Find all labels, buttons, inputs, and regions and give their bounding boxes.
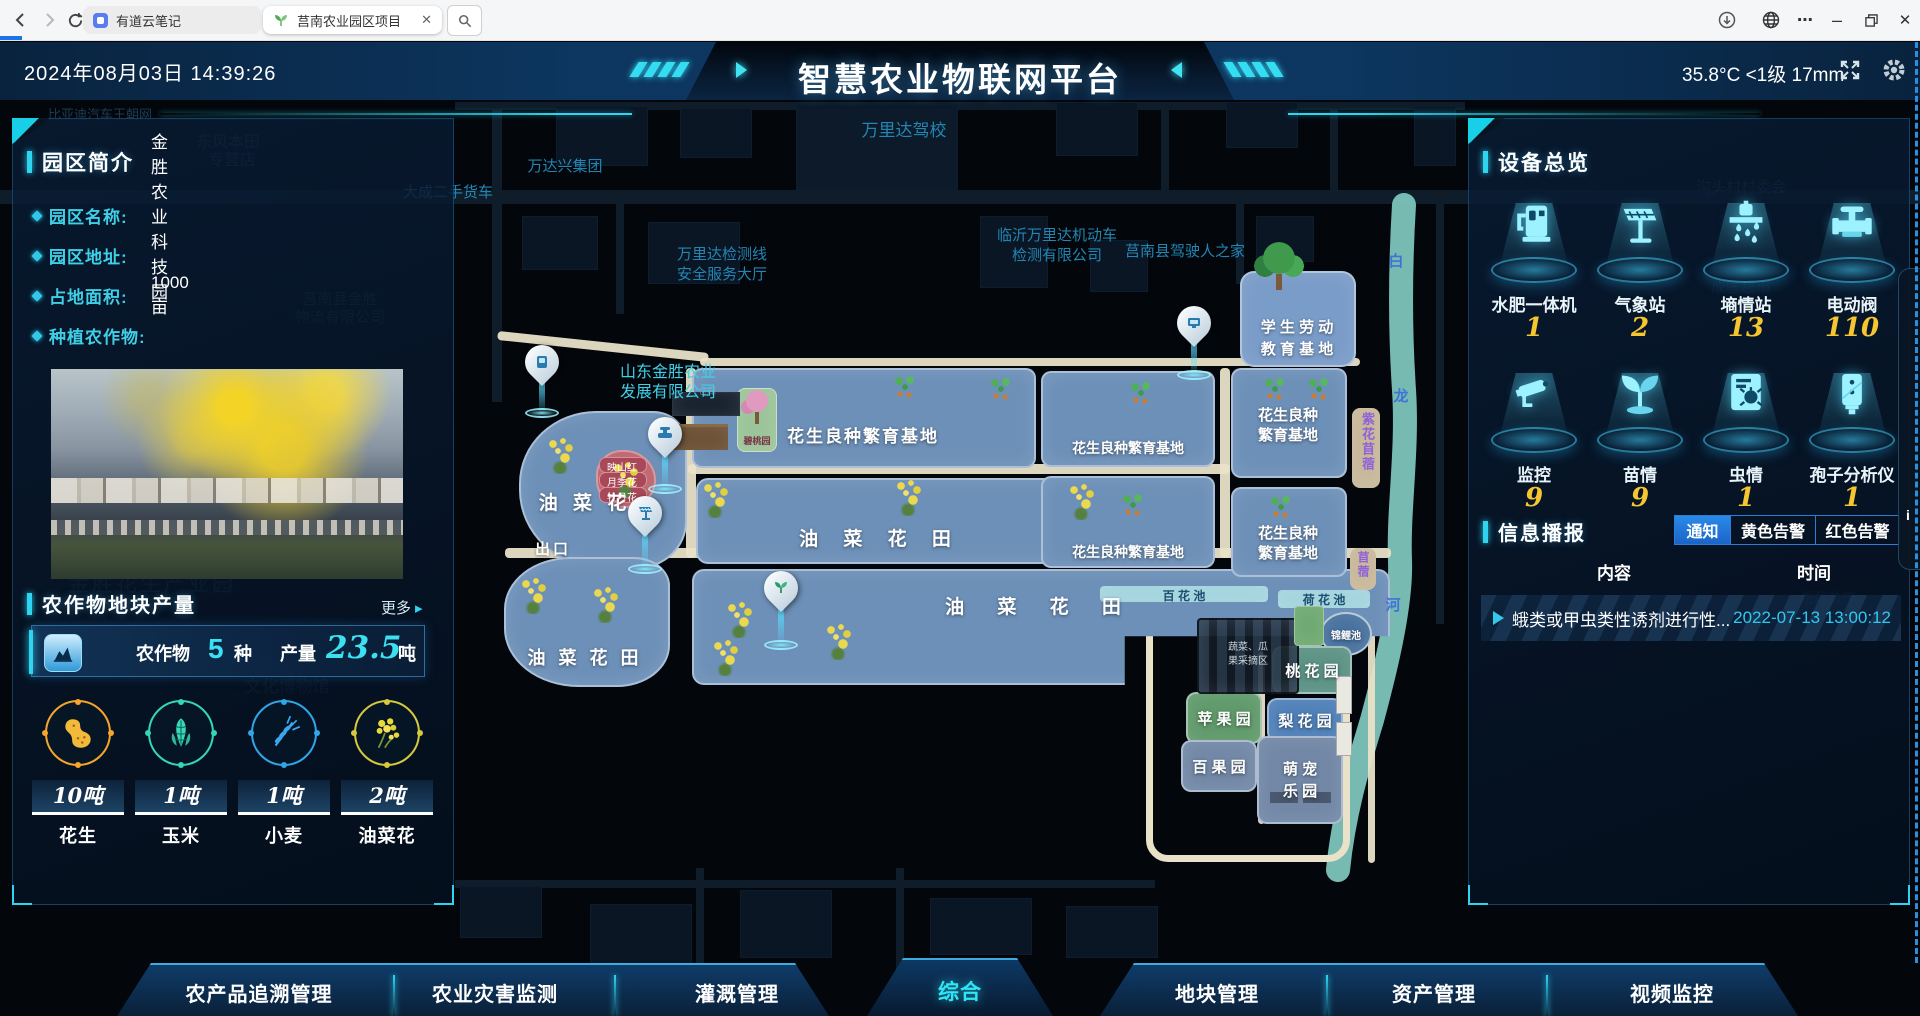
area-label: 果采摘区 [1228,652,1268,667]
map-label: 临沂万里达机动车 [997,224,1117,245]
peanut-icon [59,714,97,752]
field-label: 园区地址: [49,243,128,268]
flower-sprite [700,480,730,518]
nav-group-left: 农产品追溯管理 农业灾害监测 灌溉管理 [117,963,829,1016]
nav-separator [393,975,395,1016]
map-label: 发展有限公司 [620,378,716,402]
tab-close-icon[interactable]: ✕ [421,12,432,28]
field-value: 1000亩 [151,273,189,318]
nav-tab-plots[interactable]: 地块管理 [1175,978,1259,1007]
map-label: 龙 [1393,385,1408,406]
flower-sprite [893,478,923,516]
tab-title: 莒南农业园区项目 [297,11,401,30]
nav-separator [1326,975,1328,1016]
crop-card-corn: 1吨 玉米 [135,700,227,848]
field-label: 繁育基地 [1258,424,1318,445]
device-count: 9 [1481,483,1587,513]
nav-tab-traceability[interactable]: 农产品追溯管理 [186,978,333,1007]
field-label: 教 育 基 地 [1261,338,1334,359]
settings-gear-icon[interactable] [1882,58,1906,87]
notice-time: 2022-07-13 13:00:12 [1733,608,1891,628]
map-label: 莒南县驾驶人之家 [1125,240,1245,261]
more-arrow-icon: ▸ [415,599,423,617]
field-label: 占地面积: [49,283,128,308]
device-panel: 设备总览 水肥一体机 1 气象站 2 墒情站 13 电动阀 110 监控 9 [1468,118,1910,905]
sign-label: 月季花 [607,474,637,489]
map-label: 河 [1385,594,1400,615]
nav-tab-video[interactable]: 视频监控 [1630,978,1714,1007]
field-label: 园区名称: [49,203,128,228]
field-label: 油 菜 花 田 [799,524,961,551]
crop-section-title: 农作物地块产量 [42,589,196,618]
corn-icon [162,714,200,752]
peanut-sprite [1306,376,1332,402]
notice-row[interactable]: 蛾类或甲虫类性诱剂进行性... 2022-07-13 13:00:12 [1481,595,1901,641]
crop-amount-badge: 10吨 [32,780,124,815]
header-slashes [634,62,690,82]
field-label: 花生良种 [1258,404,1318,425]
flower-sprite [710,638,740,676]
weather-info: 35.8°C <1级 17mm [1682,60,1844,87]
field-label: 花生良种繁育基地 [1072,438,1184,458]
stat-accent-bar [29,630,33,674]
weather-station-icon [1617,199,1663,260]
crop-name: 油菜花 [341,822,433,848]
map-label: 检测有限公司 [1012,244,1102,265]
crops-count-label: 农作物 [136,640,190,666]
forward-button[interactable] [36,7,62,33]
holo-pedestal [1809,257,1895,283]
device-count: 13 [1693,313,1799,343]
holo-pedestal [1703,257,1789,283]
area-label: 蔬菜、瓜 [1228,638,1268,653]
strip-label: 紫花苜蓿 [1358,412,1377,472]
orchard-label: 梨 花 园 [1278,710,1331,731]
electric-valve-icon [1829,199,1875,260]
crops-count-unit: 种 [234,640,252,666]
play-icon [1493,611,1504,625]
alert-tabs: 通知 黄色告警 红色告警 [1674,515,1900,545]
ring-dots [281,699,287,705]
park-info-title: 园区简介 [42,147,134,177]
flower-sprite [518,576,548,614]
column-header-content: 内容 [1597,559,1631,584]
column-header-time: 时间 [1797,559,1831,584]
section-bar [27,151,32,173]
soil-moisture-icon [1723,199,1769,260]
entry-block [1294,606,1324,646]
close-button[interactable]: ✕ [1892,7,1918,33]
nav-group-right: 地块管理 资产管理 视频监控 [1100,963,1798,1016]
park-info-panel: 园区简介 园区名称:金胜农业科技园 园区地址: 占地面积:1000亩 种植农作物… [12,118,454,905]
panel-corner-accent [1468,118,1512,144]
browser-chrome: 有道云笔记 莒南农业园区项目 ✕ ⋯ – ✕ [0,0,1920,41]
nav-tab-disaster[interactable]: 农业灾害监测 [432,978,558,1007]
section-bar [27,593,32,615]
crop-amount-badge: 2吨 [341,780,433,815]
crop-name: 小麦 [238,822,330,848]
ring-dots [384,699,390,705]
chart-icon [44,634,82,672]
capture-border-right [1915,42,1918,963]
strip-label: 苜蓿 [1355,551,1372,579]
panel-corner-bracket [12,885,32,905]
device-count: 9 [1587,483,1693,513]
seedling-icon [1617,369,1663,430]
holo-pedestal [1597,427,1683,453]
tree-sprite [1252,242,1306,292]
page-title: 智慧农业物联网平台 [798,53,1122,101]
yield-value: 23.5 [326,630,402,666]
loading-progress-bar [0,36,22,40]
peanut-sprite [1262,376,1288,402]
diamond-icon [31,330,42,341]
peanut-sprite [892,374,918,400]
crops-count-value: 5 [208,633,224,665]
holo-pedestal [1809,427,1895,453]
field-label: 油 菜 花 田 [527,644,642,670]
tab-notice[interactable]: 通知 [1675,516,1731,544]
holo-pedestal [1597,257,1683,283]
yield-label: 产量 [280,640,316,666]
device-count: 1 [1799,483,1905,513]
crop-amount-badge: 1吨 [135,780,227,815]
photo-fence [51,520,403,535]
peanut-sprite [1120,492,1146,518]
insect-monitor-icon [1723,369,1769,430]
field-label: 花生良种 [1258,522,1318,543]
fertigation-machine-icon [1511,199,1557,260]
cctv-camera-icon [1511,369,1557,430]
edge-handle-label: i [1906,507,1910,523]
back-button[interactable] [8,7,34,33]
rapeseed-icon [368,714,406,752]
tab-yellow-alert[interactable]: 黄色告警 [1731,516,1816,544]
pond-label: 锦鲤池 [1331,627,1361,642]
menu-ellipsis-icon[interactable]: ⋯ [1792,7,1818,33]
holo-pedestal [1491,427,1577,453]
minimize-button[interactable]: – [1824,7,1850,33]
pin-beam-base [648,484,682,494]
peanut-sprite [1128,380,1154,406]
flower-sprite [724,600,754,638]
field-label: 花生良种繁育基地 [787,422,939,447]
tab-red-alert[interactable]: 红色告警 [1816,516,1899,544]
diamond-icon [31,290,42,301]
pin-beam-base [525,408,559,418]
crop-ring [148,700,214,766]
nav-tab-irrigation[interactable]: 灌溉管理 [695,978,779,1007]
orchard-label: 桃 花 园 [1285,660,1338,681]
crop-name: 玉米 [135,822,227,848]
kiosk-block [1336,722,1352,756]
nav-tab-assets[interactable]: 资产管理 [1392,978,1476,1007]
field-label: 繁育基地 [1258,542,1318,563]
browser-tab-youdao[interactable]: 有道云笔记 [83,6,261,34]
orchard-label: 碧桃园 [743,434,770,447]
map-label: 白 [1388,250,1403,271]
peanut-sprite [1268,494,1294,520]
dashboard-header: 智慧农业物联网平台 [0,42,1920,100]
pin-beam-base [1177,370,1211,380]
panel-corner-bracket [1468,885,1488,905]
sign-label: 映山红 [607,459,637,474]
search-button[interactable] [447,5,482,36]
tab-title: 有道云笔记 [116,11,181,30]
section-bar [1483,151,1488,173]
crop-card-rapeseed: 2吨 油菜花 [341,700,433,848]
device-count: 2 [1587,313,1693,343]
datetime: 2024年08月03日 14:39:26 [24,57,276,86]
pond-label: 荷 花 池 [1303,591,1346,608]
nav-top-border [117,963,829,965]
nav-separator [1546,975,1548,1016]
crop-name: 花生 [32,822,124,848]
header-deco-line [160,113,632,115]
spore-analyzer-icon [1829,369,1875,430]
download-icon[interactable] [1714,7,1740,33]
notice-content: 蛾类或甲虫类性诱剂进行性... [1512,606,1730,631]
device-count: 110 [1799,313,1905,343]
peanut-sprite [988,376,1014,402]
title-arrow-right-icon [1171,62,1182,78]
more-button[interactable]: 更多▸ [381,597,423,618]
crop-card-peanut: 10吨 花生 [32,700,124,848]
orchard-label: 苹 果 园 [1197,708,1250,729]
plant-favicon [273,12,289,28]
crop-ring [45,700,111,766]
restore-button[interactable] [1858,7,1884,33]
device-overview-title: 设备总览 [1498,147,1590,177]
orchard-label: 乐 园 [1283,780,1317,801]
map-label: 出口 [535,538,571,559]
crop-ring [251,700,317,766]
ring-dots [75,699,81,705]
panel-corner-accent [12,118,56,144]
ring-dots [178,699,184,705]
title-arrow-left-icon [736,62,747,78]
device-count: 1 [1481,313,1587,343]
diamond-icon [31,210,42,221]
device-count: 1 [1693,483,1799,513]
nav-tab-overview-label: 综合 [938,976,982,1006]
holo-pedestal [1491,257,1577,283]
park-photo [51,369,403,579]
road [1220,368,1230,558]
kiosk-block [1336,676,1352,714]
flower-sprite [590,585,620,623]
crop-card-wheat: 1吨 小麦 [238,700,330,848]
holo-pedestal [1703,427,1789,453]
panel-corner-bracket [1890,885,1910,905]
globe-icon[interactable] [1758,7,1784,33]
diamond-icon [31,250,42,261]
flower-sprite [1066,482,1096,520]
header-slashes [1228,62,1284,82]
panel-corner-bracket [434,885,454,905]
pin-beam-base [628,564,662,574]
broadcast-title: 信息播报 [1498,517,1586,546]
tab-favicon [93,13,108,28]
crop-amount-badge: 1吨 [238,780,330,815]
fullscreen-icon[interactable] [1840,60,1860,85]
header-deco-line [1288,113,1760,115]
orchard-label: 百 果 园 [1192,756,1245,777]
crop-ring [354,700,420,766]
map-label: 安全服务大厅 [677,263,767,284]
photo-overlay [51,369,403,579]
field-label: 油 菜 花 田 [945,592,1135,619]
orchard-label: 萌 宠 [1283,758,1317,779]
map-label: 万里达检测线 [677,243,767,264]
nav-separator [614,975,616,1016]
field-label: 花生良种繁育基地 [1072,542,1184,562]
flower-sprite [545,436,575,474]
map-label: 万达兴集团 [527,155,602,176]
field-label: 学 生 劳 动 [1261,316,1334,337]
browser-tab-park-project[interactable]: 莒南农业园区项目 ✕ [263,6,442,34]
yield-unit: 吨 [398,640,416,666]
wheat-icon [265,714,303,752]
crop-stat-bar: 农作物 5 种 产量 23.5 吨 [31,625,425,677]
pin-beam-base [764,640,798,650]
photo-buildings [51,478,403,503]
map-label: 万里达驾校 [862,116,947,141]
flower-sprite [823,622,853,660]
field-label: 种植农作物: [49,323,146,348]
more-label: 更多 [381,597,411,618]
nav-top-border [1100,963,1798,965]
pink-tree-sprite [739,390,775,424]
pond-label: 百 花 池 [1163,587,1206,604]
section-bar [1483,521,1488,543]
